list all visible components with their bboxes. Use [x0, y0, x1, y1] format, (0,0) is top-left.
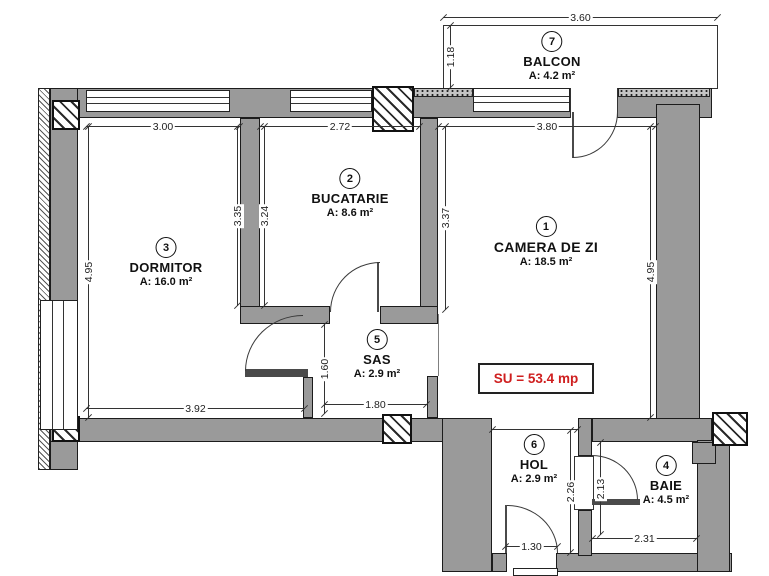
room-label-sas: 5 SAS A: 2.9 m²: [354, 329, 400, 380]
room-area: A: 18.5 m²: [494, 256, 598, 268]
room-number-badge: 7: [542, 31, 563, 52]
room-label-hol: 6 HOL A: 2.9 m²: [511, 434, 557, 485]
room-area: A: 4.5 m²: [643, 494, 689, 506]
dim-label: 2.72: [328, 121, 352, 133]
window-dormitor: [86, 90, 230, 112]
wall-hol-baie-lower: [578, 510, 592, 556]
dim-label: 3.35: [232, 204, 244, 228]
wall-sas-left-stub: [303, 377, 313, 418]
room-number-badge: 1: [535, 216, 556, 237]
dim-balcony-depth: 1.18: [450, 25, 451, 88]
room-area: A: 2.9 m²: [511, 473, 557, 485]
room-name: BUCATARIE: [311, 191, 388, 206]
entrance-step: [513, 568, 558, 576]
dim-dormitor-width: 3.00: [86, 126, 240, 127]
dim-label: 1.80: [363, 399, 387, 411]
dim-label: 4.95: [83, 260, 95, 284]
bucatarie-door-arc: [330, 262, 380, 312]
room-label-balcon: 7 BALCON A: 4.2 m²: [523, 31, 580, 82]
dim-label: 2.13: [595, 476, 607, 500]
room-name: SAS: [354, 352, 400, 367]
insulation-top-strip-1: [414, 88, 473, 97]
room-label-bucatarie: 2 BUCATARIE A: 8.6 m²: [311, 168, 388, 219]
dim-hol-door-width: 1.30: [505, 546, 558, 547]
room-number-badge: 5: [367, 329, 388, 350]
room-number-badge: 2: [339, 168, 360, 189]
dim-label: 4.95: [645, 260, 657, 284]
room-name: CAMERA DE ZI: [494, 239, 598, 255]
dim-hol-top-boundary: [492, 429, 578, 430]
wall-hol-left: [442, 418, 492, 572]
window-dormitor-side: [40, 300, 78, 430]
insulation-top-strip-2: [618, 88, 710, 97]
baie-door-jamb: [574, 456, 594, 510]
room-number-badge: 6: [524, 434, 545, 455]
dim-label: 3.00: [151, 121, 175, 133]
room-name: BALCON: [523, 54, 580, 69]
room-number-badge: 4: [656, 455, 677, 476]
dim-living-width: 3.80: [438, 126, 656, 127]
wall-bucatarie-living: [420, 118, 438, 314]
column-bottom-center: [382, 414, 412, 444]
dim-label: 1.30: [519, 541, 543, 553]
dim-dormitor-height: 4.95: [88, 126, 89, 418]
wall-right: [656, 104, 700, 440]
room-label-dormitor: 3 DORMITOR A: 16.0 m²: [130, 237, 203, 288]
dim-bucatarie-width: 2.72: [260, 126, 420, 127]
window-living-balcony: [473, 88, 570, 112]
wall-hol-baie-upper: [578, 418, 592, 456]
dim-sas-height: 1.60: [324, 324, 325, 414]
room-number-badge: 3: [156, 237, 177, 258]
floor-plan: 3.60 1.18 3.00 2.72 3.80 4.95 3.35 3.24 …: [0, 0, 769, 576]
dim-bucatarie-wall-left: 3.24: [264, 126, 265, 306]
column-top-left: [52, 100, 80, 130]
dim-label: 2.31: [632, 533, 656, 545]
room-label-camera-de-zi: 1 CAMERA DE ZI A: 18.5 m²: [494, 216, 598, 268]
dim-baie-width: 2.31: [592, 538, 697, 539]
dim-baie-door-height: 2.13: [600, 442, 601, 535]
dim-label: 3.80: [535, 121, 559, 133]
dim-label: 3.60: [568, 12, 592, 24]
room-name: DORMITOR: [130, 260, 203, 275]
wall-bottom-main: [50, 418, 492, 442]
balcony-door-arc: [573, 112, 618, 158]
dim-label: 1.60: [319, 357, 331, 381]
room-area: A: 4.2 m²: [523, 70, 580, 82]
room-name: BAIE: [643, 478, 689, 493]
dim-balcony-width: 3.60: [443, 17, 718, 18]
wall-sas-right-stub: [427, 376, 438, 418]
wall-baie-top: [592, 418, 712, 442]
dim-label: 3.37: [440, 206, 452, 230]
dim-bucatarie-wall-right: 3.37: [445, 126, 446, 310]
total-area-box: SU = 53.4 mp: [478, 363, 594, 394]
dim-label: 3.92: [183, 403, 207, 415]
dim-dormitor-bottom: 3.92: [86, 408, 305, 409]
room-area: A: 2.9 m²: [354, 368, 400, 380]
dim-label: 1.18: [445, 44, 457, 68]
column-bottom-right: [712, 412, 748, 446]
room-name: HOL: [511, 457, 557, 472]
dim-dormitor-wall: 3.35: [237, 126, 238, 306]
dim-hol-height: 2.26: [570, 430, 571, 553]
dim-sas-width: 1.80: [324, 404, 427, 405]
room-area: A: 8.6 m²: [311, 207, 388, 219]
sas-living-boundary: [438, 314, 439, 376]
room-label-baie: 4 BAIE A: 4.5 m²: [643, 455, 689, 506]
wall-bucatarie-bottom-right: [380, 306, 438, 324]
dim-label: 2.26: [565, 479, 577, 503]
dim-label: 3.24: [259, 204, 271, 228]
room-area: A: 16.0 m²: [130, 276, 203, 288]
dim-living-height: 4.95: [650, 126, 651, 418]
wall-hol-bottom-stub: [492, 553, 507, 572]
window-bucatarie: [290, 90, 372, 112]
